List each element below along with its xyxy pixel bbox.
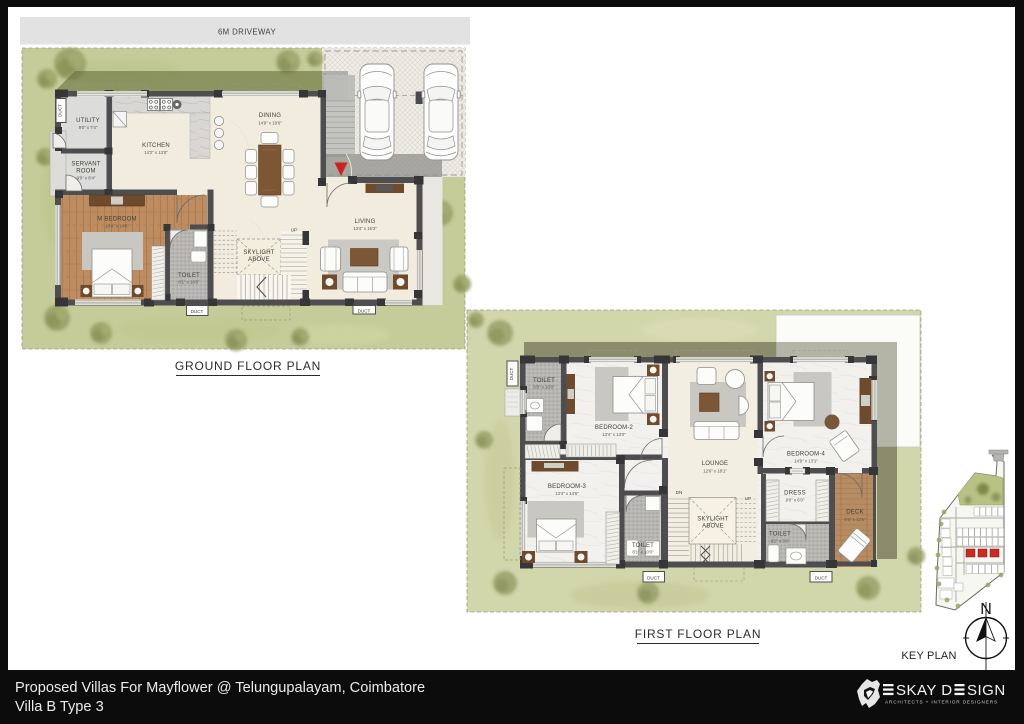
svg-text:13'4" x 16'3": 13'4" x 16'3" <box>353 226 377 231</box>
svg-text:N: N <box>980 601 992 618</box>
svg-text:9'2" x 3'6": 9'2" x 3'6" <box>771 539 790 544</box>
svg-text:SERVANT: SERVANT <box>71 162 100 168</box>
svg-text:13'4" x 13'0": 13'4" x 13'0" <box>602 432 626 437</box>
svg-text:Villa B Type 3: Villa B Type 3 <box>15 699 104 715</box>
svg-text:9'0" x 8'4": 9'0" x 8'4" <box>77 176 96 181</box>
svg-text:8'1" x 10'0": 8'1" x 10'0" <box>632 550 654 555</box>
svg-text:DUCT: DUCT <box>191 309 204 314</box>
svg-text:9'0" x 7'4": 9'0" x 7'4" <box>79 125 98 130</box>
svg-text:ARCHITECTS + INTERIOR DESIG: ARCHITECTS + INTERIOR DESIGNERS <box>885 700 998 705</box>
svg-text:KITCHEN: KITCHEN <box>142 143 170 149</box>
svg-text:DUCT: DUCT <box>509 367 514 380</box>
svg-text:BEDROOM-3: BEDROOM-3 <box>548 484 587 490</box>
svg-text:SKYLIGHT: SKYLIGHT <box>243 250 274 256</box>
svg-text:BEDROOM-4: BEDROOM-4 <box>787 452 826 458</box>
svg-text:ABOVE: ABOVE <box>248 257 270 263</box>
svg-text:8'1" x 10'0": 8'1" x 10'0" <box>178 280 200 285</box>
svg-text:13'4" x 14'6": 13'4" x 14'6" <box>555 491 579 496</box>
svg-text:TOILET: TOILET <box>533 378 555 384</box>
svg-text:SKYLIGHT: SKYLIGHT <box>697 517 728 523</box>
svg-text:DRESS: DRESS <box>784 491 806 497</box>
svg-text:FIRST FLOOR PLAN: FIRST FLOOR PLAN <box>635 627 762 641</box>
svg-text:TOILET: TOILET <box>632 543 654 549</box>
svg-text:UP: UP <box>745 496 751 501</box>
svg-text:SIGN: SIGN <box>967 682 1006 699</box>
svg-text:DINING: DINING <box>259 113 281 119</box>
svg-text:LIVING: LIVING <box>355 219 376 225</box>
svg-text:ROOM: ROOM <box>76 169 95 175</box>
svg-text:9'0" x 6'0": 9'0" x 6'0" <box>786 498 805 503</box>
svg-text:M BEDROOM: M BEDROOM <box>97 217 136 223</box>
svg-text:GROUND FLOOR PLAN: GROUND FLOOR PLAN <box>175 359 321 373</box>
svg-text:BEDROOM-2: BEDROOM-2 <box>595 425 634 431</box>
svg-text:DUCT: DUCT <box>647 575 660 580</box>
svg-text:6'0" x 10'0": 6'0" x 10'0" <box>533 385 555 390</box>
svg-text:12'6" x 18'1": 12'6" x 18'1" <box>703 469 727 474</box>
svg-text:14'2" x 13'0": 14'2" x 13'0" <box>144 150 168 155</box>
svg-text:UP: UP <box>291 228 297 233</box>
svg-text:14'9" x 13'1": 14'9" x 13'1" <box>794 459 818 464</box>
svg-text:DECK: DECK <box>846 510 863 516</box>
svg-text:TOILET: TOILET <box>178 273 200 279</box>
svg-text:Proposed Villas For Mayflower: Proposed Villas For Mayflower @ Telungup… <box>15 680 425 696</box>
svg-text:ABOVE: ABOVE <box>702 524 724 530</box>
svg-text:6'6" x 12'6": 6'6" x 12'6" <box>844 517 866 522</box>
svg-text:LOUNGE: LOUNGE <box>702 461 729 467</box>
svg-text:UTILITY: UTILITY <box>76 118 100 124</box>
svg-text:14'9" x 19'6": 14'9" x 19'6" <box>258 121 282 126</box>
svg-text:6M DRIVEWAY: 6M DRIVEWAY <box>218 28 277 37</box>
svg-text:DUCT: DUCT <box>58 104 63 117</box>
svg-text:SKAY D: SKAY D <box>896 682 953 699</box>
svg-text:DN: DN <box>676 490 683 495</box>
svg-text:TOILET: TOILET <box>769 532 791 538</box>
svg-text:13'4" x 14'6": 13'4" x 14'6" <box>105 224 129 229</box>
svg-text:DUCT: DUCT <box>358 308 371 313</box>
svg-text:KEY PLAN: KEY PLAN <box>901 650 956 662</box>
svg-text:DUCT: DUCT <box>815 575 828 580</box>
